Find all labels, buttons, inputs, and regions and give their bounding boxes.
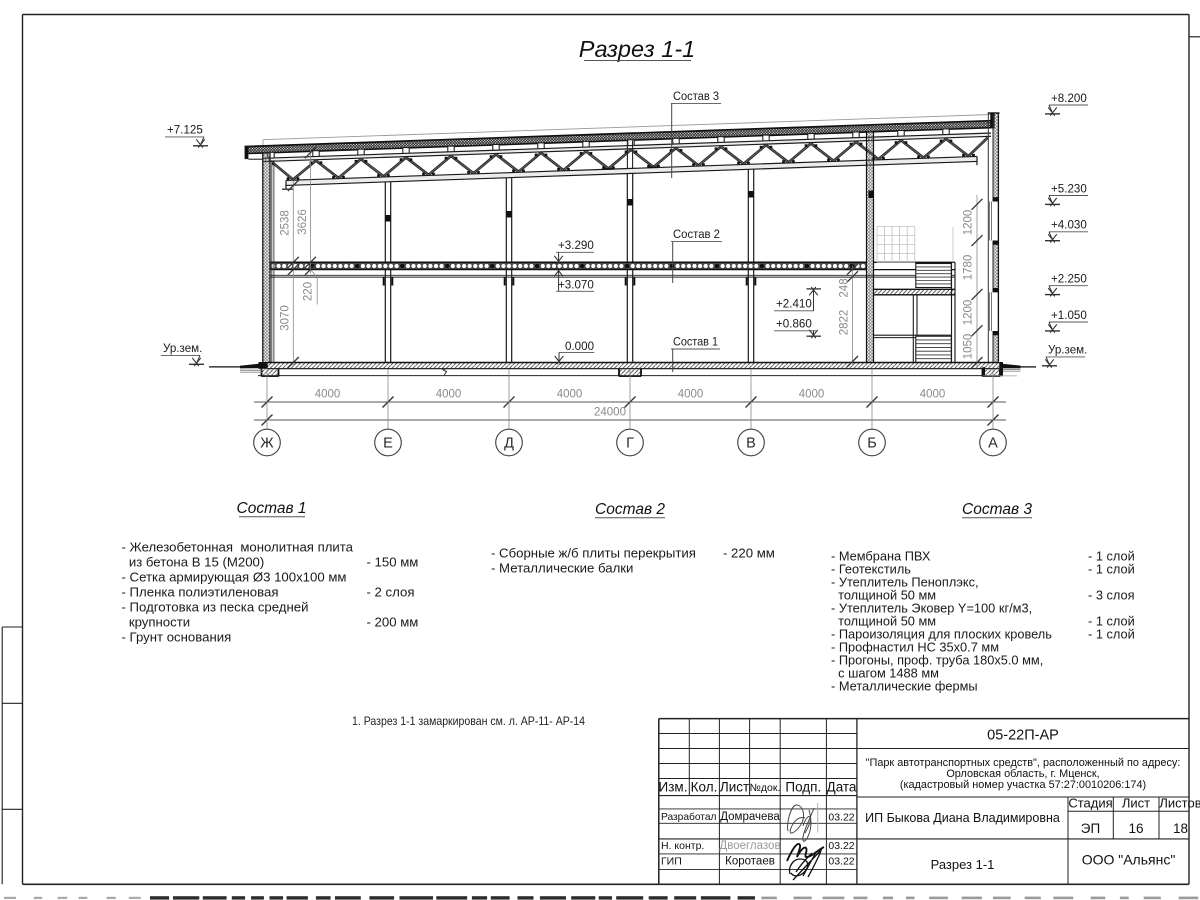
svg-text:- 220 мм: - 220 мм (723, 546, 775, 561)
svg-text:1200: 1200 (963, 210, 975, 236)
svg-text:Состав 2: Состав 2 (673, 227, 720, 241)
svg-text:2538: 2538 (280, 210, 292, 236)
svg-text:16: 16 (1128, 821, 1143, 836)
svg-text:- 2 слоя: - 2 слоя (367, 585, 415, 600)
svg-text:- Грунт основания: - Грунт основания (122, 630, 232, 645)
svg-text:Состав 3: Состав 3 (673, 89, 719, 103)
svg-text:Кол.: Кол. (691, 780, 718, 795)
svg-text:Домрачева: Домрачева (720, 811, 780, 823)
svg-text:Стадия: Стадия (1068, 796, 1112, 811)
svg-text:Состав 1: Состав 1 (237, 500, 307, 517)
svg-text:+2.410: +2.410 (776, 298, 812, 311)
svg-text:Ур.зем.: Ур.зем. (163, 342, 202, 355)
svg-text:Лист: Лист (1122, 796, 1150, 811)
svg-text:03.22: 03.22 (828, 856, 854, 868)
svg-text:+4.030: +4.030 (1051, 219, 1087, 232)
svg-text:Коротаев: Коротаев (725, 856, 775, 868)
svg-text:- Сборные ж/б плиты перекрытия: - Сборные ж/б плиты перекрытия (491, 546, 696, 561)
svg-text:4000: 4000 (557, 389, 583, 401)
svg-text:+1.050: +1.050 (1051, 309, 1087, 322)
svg-text:ЭП: ЭП (1081, 821, 1100, 836)
svg-text:03.22: 03.22 (828, 840, 854, 852)
svg-text:+3.290: +3.290 (558, 239, 594, 252)
svg-text:+0.860: +0.860 (776, 318, 812, 331)
svg-text:Двоеглазов: Двоеглазов (719, 840, 780, 852)
svg-text:+3.070: +3.070 (558, 279, 594, 292)
svg-text:- Пленка полиэтиленовая: - Пленка полиэтиленовая (122, 585, 279, 600)
svg-text:+8.200: +8.200 (1051, 92, 1087, 105)
svg-text:Лист: Лист (720, 780, 749, 795)
svg-text:+7.125: +7.125 (167, 124, 203, 137)
svg-text:ИП Быкова Диана Владимировна: ИП Быкова Диана Владимировна (865, 811, 1060, 825)
svg-text:05-22П-АР: 05-22П-АР (987, 728, 1059, 744)
svg-text:1. Разрез 1-1 замаркирован см.: 1. Разрез 1-1 замаркирован см. л. АР-11-… (352, 714, 585, 728)
svg-text:0.000: 0.000 (565, 340, 594, 353)
svg-text:Е: Е (383, 436, 393, 452)
svg-text:4000: 4000 (315, 389, 341, 401)
svg-text:Разработал: Разработал (661, 811, 717, 823)
svg-text:Разрез 1-1: Разрез 1-1 (579, 36, 695, 62)
svg-text:(кадастровый номер участка 57:: (кадастровый номер участка 57:27:0010206… (900, 779, 1146, 791)
svg-text:крупности: крупности (122, 615, 191, 630)
svg-text:ООО "Альянс": ООО "Альянс" (1082, 852, 1176, 868)
svg-text:+5.230: +5.230 (1051, 182, 1087, 195)
svg-text:Г: Г (626, 436, 634, 452)
svg-text:1780: 1780 (963, 255, 975, 281)
svg-text:- 200 мм: - 200 мм (367, 615, 419, 630)
svg-text:Подп.: Подп. (785, 780, 821, 795)
svg-text:ГИП: ГИП (661, 856, 682, 868)
svg-text:из бетона В 15 (М200): из бетона В 15 (М200) (122, 555, 265, 570)
svg-text:- 3 слоя: - 3 слоя (1088, 588, 1135, 603)
svg-text:248: 248 (839, 278, 851, 297)
svg-text:3626: 3626 (297, 209, 309, 235)
svg-text:№док.: №док. (750, 782, 781, 794)
svg-text:В: В (746, 436, 756, 452)
svg-text:Состав 2: Состав 2 (595, 501, 665, 518)
svg-text:Н. контр.: Н. контр. (661, 840, 704, 852)
svg-text:24000: 24000 (594, 407, 626, 419)
svg-text:03.22: 03.22 (828, 812, 854, 824)
svg-text:- 150 мм: - 150 мм (367, 555, 419, 570)
svg-text:Ж: Ж (260, 436, 274, 452)
svg-text:- Железобетонная монолитная п: - Железобетонная монолитная плита (122, 540, 354, 555)
svg-text:+2.250: +2.250 (1051, 273, 1087, 286)
svg-text:1050: 1050 (963, 334, 975, 360)
svg-text:- Металлические балки: - Металлические балки (491, 561, 633, 576)
svg-text:18: 18 (1173, 821, 1188, 836)
svg-text:Состав 1: Состав 1 (673, 335, 718, 349)
svg-text:- Металлические фермы: - Металлические фермы (831, 679, 978, 694)
svg-text:- Подготовка из песка средней: - Подготовка из песка средней (122, 600, 309, 615)
svg-text:Состав 3: Состав 3 (962, 501, 1032, 518)
svg-text:- 1 слой: - 1 слой (1088, 627, 1135, 642)
svg-text:4000: 4000 (436, 389, 462, 401)
svg-text:- 1 слой: - 1 слой (1088, 562, 1135, 577)
svg-text:Ур.зем.: Ур.зем. (1048, 344, 1087, 357)
svg-text:Б: Б (867, 436, 877, 452)
svg-text:- Сетка армирующая Ø3 100х100: - Сетка армирующая Ø3 100х100 мм (122, 570, 347, 585)
svg-text:1200: 1200 (963, 300, 975, 326)
svg-text:4000: 4000 (920, 389, 946, 401)
svg-text:Дата: Дата (827, 780, 857, 795)
svg-text:4000: 4000 (799, 389, 825, 401)
svg-text:Разрез 1-1: Разрез 1-1 (931, 857, 995, 872)
svg-text:Листов: Листов (1159, 796, 1200, 811)
svg-text:А: А (988, 436, 998, 452)
svg-text:Д: Д (504, 436, 514, 452)
svg-text:220: 220 (303, 282, 315, 301)
svg-text:4000: 4000 (678, 389, 704, 401)
svg-text:Изм.: Изм. (659, 780, 688, 795)
svg-text:3070: 3070 (280, 305, 292, 331)
svg-text:2822: 2822 (839, 310, 851, 336)
